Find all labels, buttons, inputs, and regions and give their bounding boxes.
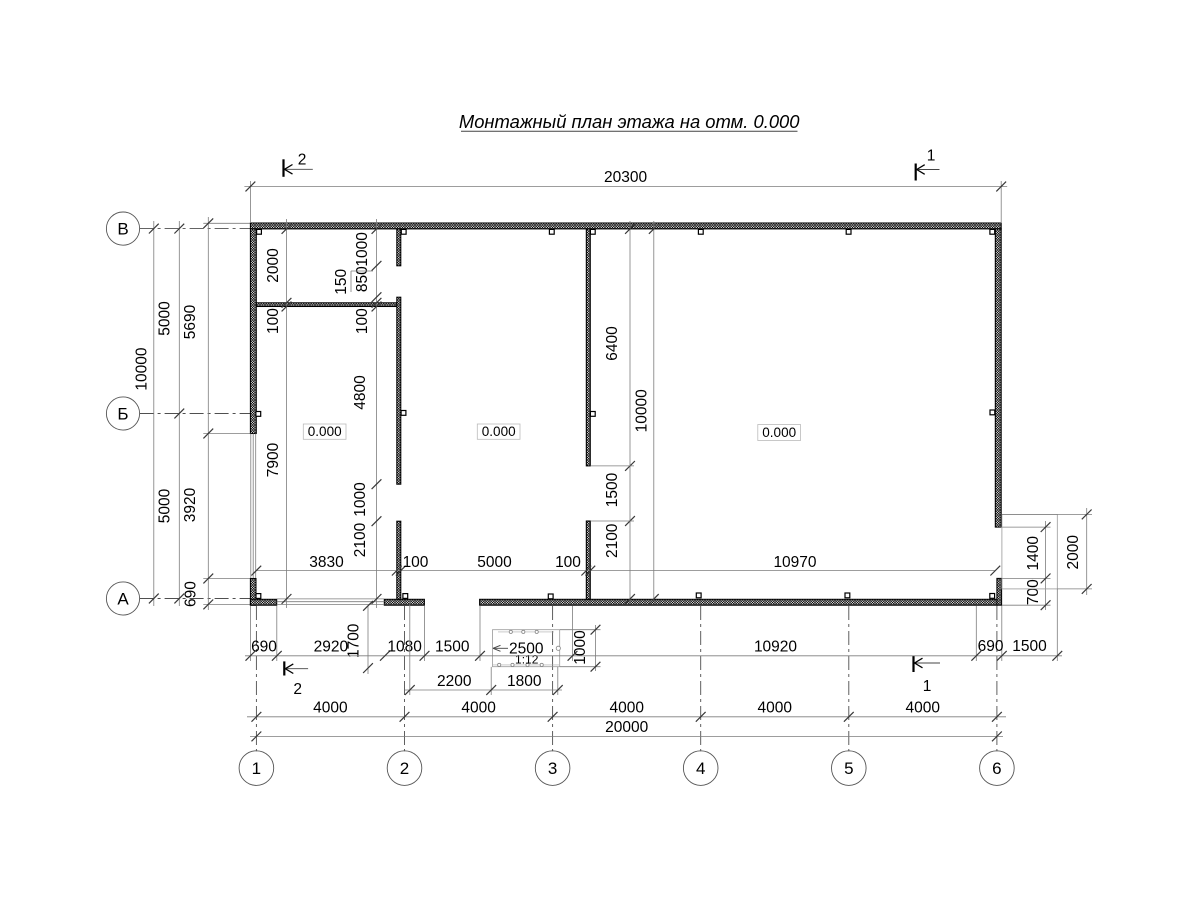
svg-text:1400: 1400 (1025, 536, 1042, 571)
svg-text:4000: 4000 (758, 700, 793, 717)
svg-text:20300: 20300 (604, 169, 647, 186)
svg-text:Монтажный план этажа на отм. 0: Монтажный план этажа на отм. 0.000 (459, 111, 800, 132)
svg-text:4000: 4000 (461, 700, 496, 717)
svg-text:1000: 1000 (354, 232, 371, 267)
svg-text:5000: 5000 (156, 488, 173, 523)
svg-text:1500: 1500 (604, 472, 621, 507)
svg-text:1500: 1500 (1012, 638, 1047, 655)
svg-text:2200: 2200 (437, 673, 472, 690)
svg-text:2920: 2920 (314, 639, 349, 656)
svg-text:5000: 5000 (156, 301, 173, 336)
svg-text:2000: 2000 (265, 248, 282, 283)
svg-text:5: 5 (844, 759, 853, 778)
svg-text:1:12: 1:12 (515, 653, 539, 667)
svg-text:1: 1 (927, 148, 936, 165)
svg-text:2100: 2100 (604, 523, 621, 558)
svg-text:2: 2 (298, 152, 307, 169)
svg-text:0.000: 0.000 (762, 425, 796, 440)
svg-text:2: 2 (293, 681, 302, 698)
svg-text:4000: 4000 (313, 700, 348, 717)
svg-text:100: 100 (555, 554, 581, 571)
svg-text:Б: Б (117, 405, 128, 424)
svg-text:10000: 10000 (634, 389, 651, 432)
svg-text:3: 3 (548, 759, 557, 778)
svg-text:850: 850 (354, 266, 371, 292)
svg-text:690: 690 (183, 581, 200, 607)
svg-text:0.000: 0.000 (482, 424, 516, 439)
svg-text:7900: 7900 (265, 442, 282, 477)
svg-text:10000: 10000 (133, 347, 150, 390)
svg-text:4: 4 (696, 759, 705, 778)
svg-text:3830: 3830 (309, 554, 344, 571)
svg-text:5000: 5000 (477, 554, 512, 571)
svg-text:10920: 10920 (754, 639, 797, 656)
svg-text:690: 690 (251, 639, 277, 656)
svg-text:6: 6 (992, 759, 1001, 778)
svg-text:10970: 10970 (773, 554, 816, 571)
svg-text:700: 700 (1025, 579, 1042, 605)
svg-text:2: 2 (400, 759, 409, 778)
svg-text:1000: 1000 (572, 630, 589, 665)
svg-text:4800: 4800 (352, 375, 369, 410)
svg-text:4000: 4000 (609, 700, 644, 717)
svg-text:1: 1 (252, 759, 261, 778)
svg-text:20000: 20000 (605, 719, 648, 736)
svg-text:5690: 5690 (182, 304, 199, 339)
svg-text:1800: 1800 (507, 673, 542, 690)
svg-text:В: В (117, 220, 128, 239)
svg-text:1500: 1500 (435, 639, 470, 656)
svg-text:0.000: 0.000 (308, 424, 342, 439)
svg-text:3920: 3920 (182, 487, 199, 522)
svg-text:1: 1 (923, 678, 932, 695)
svg-text:2100: 2100 (352, 522, 369, 557)
svg-text:1080: 1080 (387, 639, 422, 656)
svg-text:А: А (117, 590, 129, 609)
svg-text:100: 100 (403, 554, 429, 571)
svg-text:4000: 4000 (906, 700, 941, 717)
svg-text:6400: 6400 (604, 326, 621, 361)
svg-text:100: 100 (265, 308, 282, 334)
svg-text:1000: 1000 (352, 482, 369, 517)
svg-text:100: 100 (354, 308, 371, 334)
svg-text:2000: 2000 (1065, 535, 1082, 570)
svg-text:150: 150 (333, 268, 350, 294)
svg-text:690: 690 (978, 638, 1004, 655)
